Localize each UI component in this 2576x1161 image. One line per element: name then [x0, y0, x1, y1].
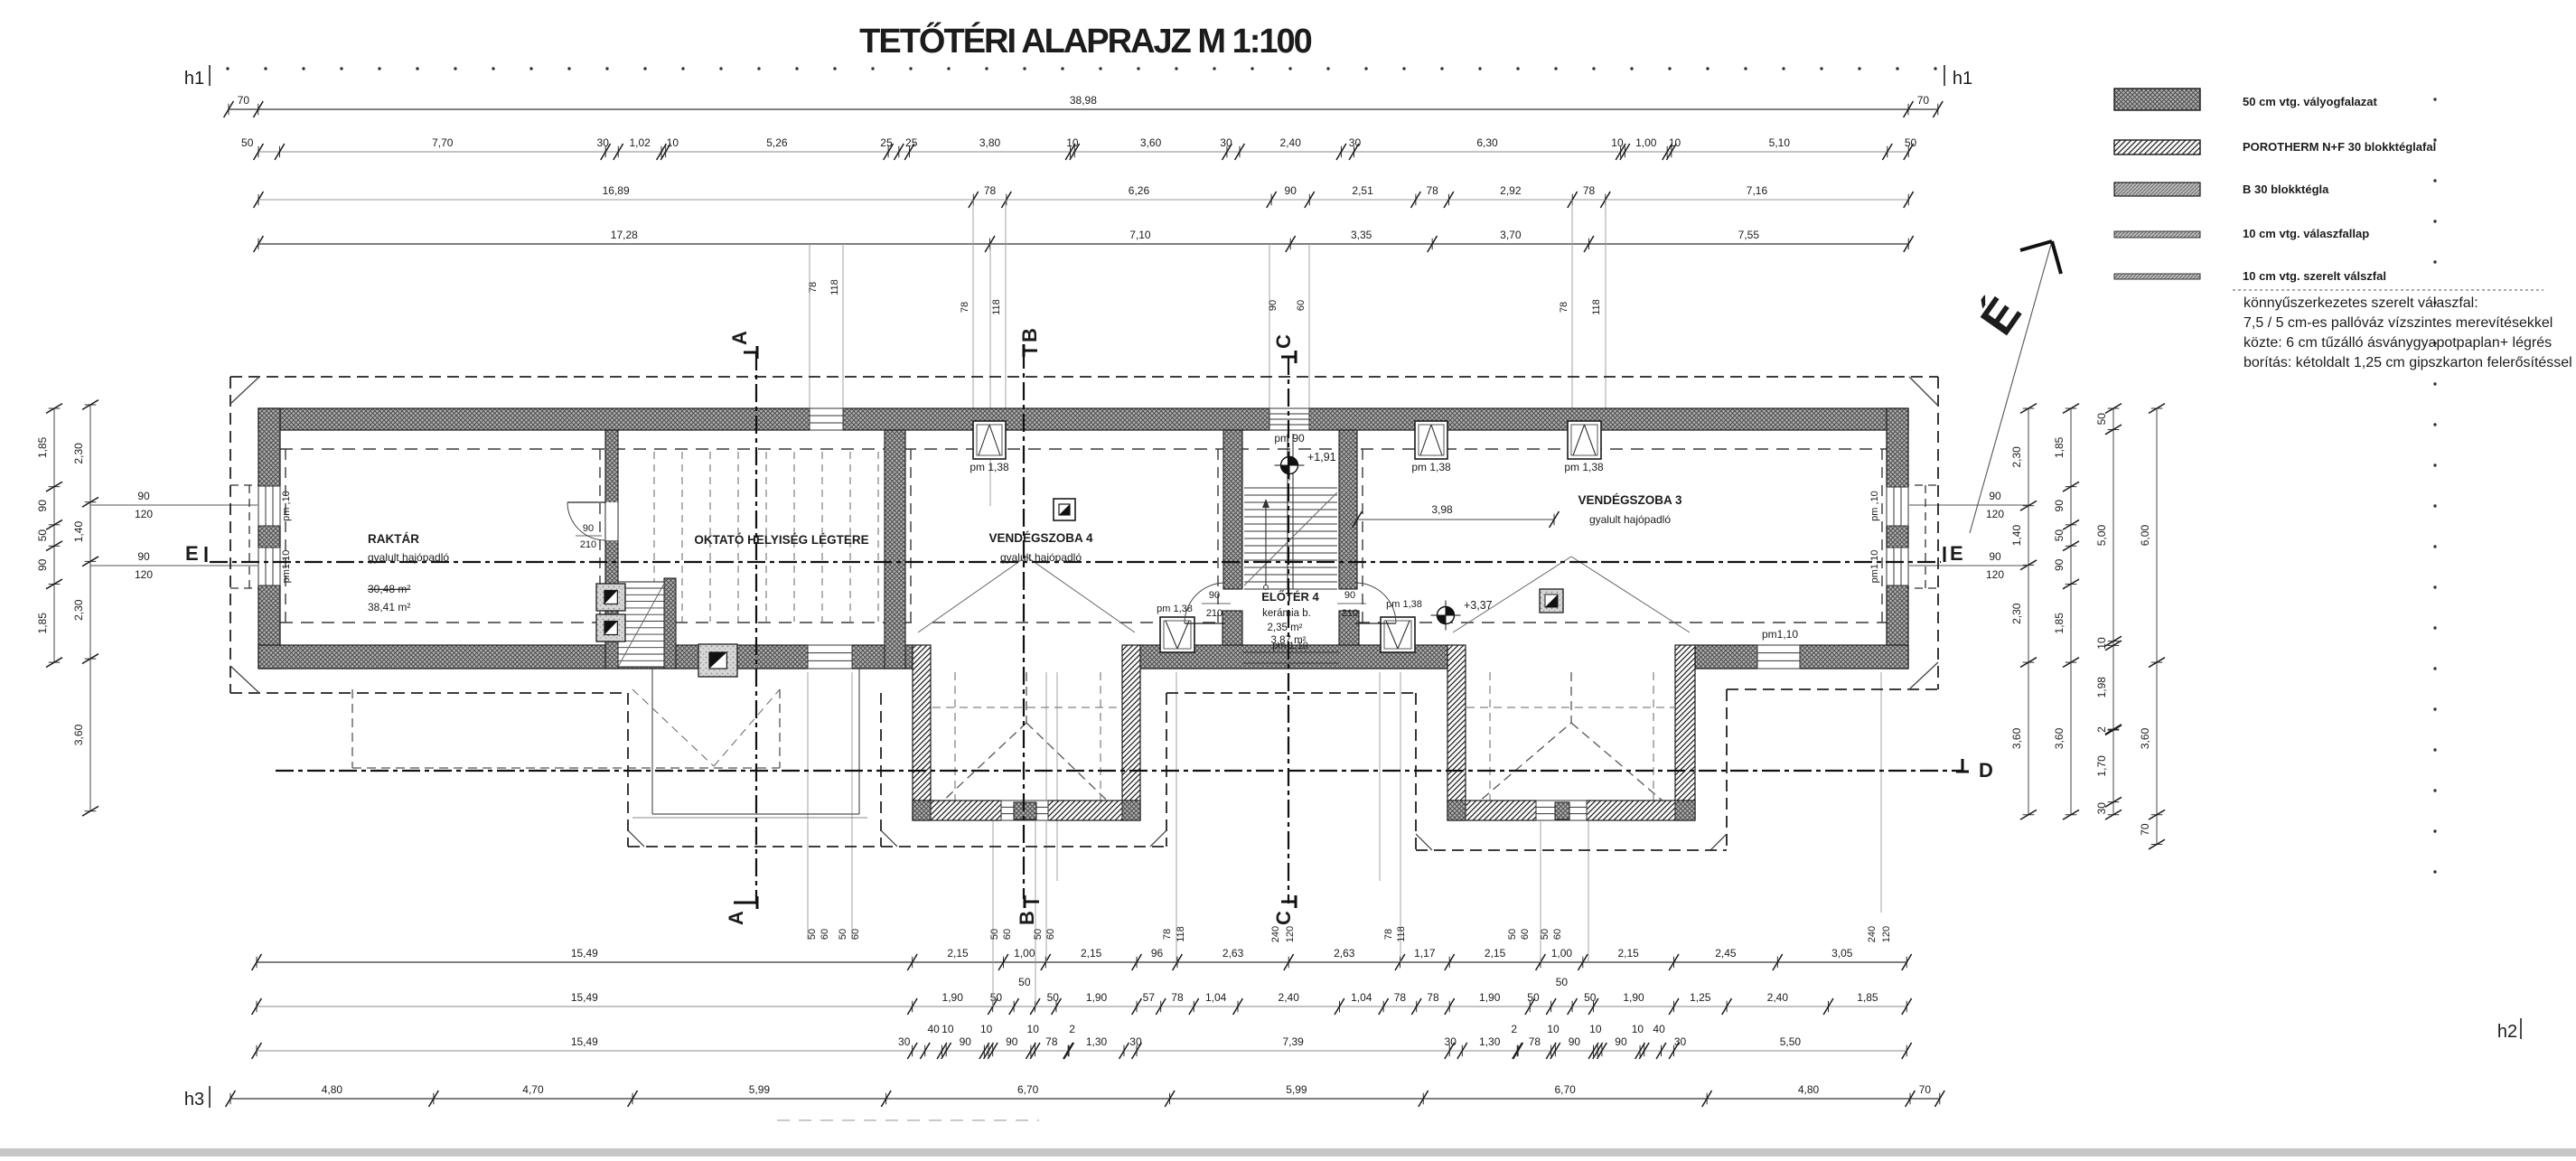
- svg-text:120: 120: [1986, 568, 2004, 581]
- svg-text:4,80: 4,80: [1798, 1083, 1820, 1096]
- svg-text:38,98: 38,98: [1070, 94, 1097, 107]
- svg-text:10: 10: [667, 136, 679, 149]
- svg-text:120: 120: [135, 568, 153, 581]
- svg-text:kerámia b.: kerámia b.: [1262, 608, 1311, 619]
- svg-text:90: 90: [1615, 1035, 1627, 1048]
- svg-text:78: 78: [1559, 302, 1569, 313]
- svg-text:25: 25: [880, 136, 893, 149]
- svg-text:B 30 blokktégla: B 30 blokktégla: [2243, 183, 2329, 196]
- svg-text:1,40: 1,40: [2010, 525, 2023, 547]
- svg-text:2,30: 2,30: [2010, 446, 2023, 468]
- svg-text:2,30: 2,30: [72, 443, 85, 464]
- svg-text:50: 50: [1047, 991, 1060, 1004]
- svg-text:6,30: 6,30: [1476, 136, 1498, 149]
- svg-text:60: 60: [1002, 929, 1013, 940]
- svg-text:78: 78: [1383, 929, 1394, 940]
- svg-text:10: 10: [2095, 637, 2108, 650]
- svg-text:1,30: 1,30: [1479, 1035, 1501, 1048]
- svg-text:6,26: 6,26: [1129, 184, 1150, 197]
- svg-text:60: 60: [1296, 300, 1307, 311]
- svg-text:16,89: 16,89: [603, 184, 630, 197]
- svg-text:6,00: 6,00: [2139, 525, 2151, 547]
- svg-text:1,04: 1,04: [1351, 991, 1372, 1004]
- svg-text:7,10: 7,10: [1129, 229, 1151, 241]
- svg-text:h3: h3: [184, 1090, 204, 1110]
- svg-text:5,10: 5,10: [1769, 136, 1791, 149]
- svg-text:2: 2: [1511, 1023, 1517, 1035]
- svg-text:3,60: 3,60: [1140, 136, 1162, 149]
- svg-text:78: 78: [960, 302, 970, 313]
- svg-text:50: 50: [1584, 991, 1597, 1004]
- svg-text:10: 10: [1611, 136, 1624, 149]
- svg-text:3,87 m²: 3,87 m²: [1271, 635, 1307, 646]
- svg-text:90: 90: [1268, 300, 1279, 311]
- svg-text:A: A: [728, 331, 751, 345]
- svg-text:E: E: [185, 542, 199, 565]
- svg-text:210: 210: [1206, 608, 1222, 619]
- svg-text:h1: h1: [1953, 69, 1972, 89]
- svg-text:50: 50: [1905, 136, 1917, 149]
- svg-text:RAKTÁR: RAKTÁR: [368, 532, 419, 546]
- svg-text:2,15: 2,15: [947, 947, 969, 960]
- svg-text:210: 210: [580, 539, 596, 550]
- svg-text:90: 90: [1569, 1035, 1581, 1048]
- svg-text:6,70: 6,70: [1555, 1083, 1577, 1096]
- svg-text:10: 10: [1669, 136, 1681, 149]
- svg-text:pm 1,38: pm 1,38: [1411, 461, 1451, 473]
- svg-text:10 cm vtg. szerelt válszfal: 10 cm vtg. szerelt válszfal: [2243, 269, 2386, 283]
- svg-text:2,35 m²: 2,35 m²: [1268, 623, 1303, 633]
- svg-text:50: 50: [1540, 929, 1550, 940]
- svg-text:3,35: 3,35: [1351, 229, 1372, 241]
- svg-text:15,49: 15,49: [571, 1035, 598, 1048]
- svg-text:pm 1,38: pm 1,38: [1564, 461, 1604, 473]
- svg-text:B: B: [1016, 911, 1038, 925]
- svg-text:70: 70: [238, 94, 250, 107]
- svg-text:7,70: 7,70: [432, 136, 454, 149]
- svg-text:38,41 m²: 38,41 m²: [368, 601, 410, 613]
- svg-text:210: 210: [1342, 608, 1358, 619]
- svg-text:2,40: 2,40: [1767, 991, 1789, 1004]
- svg-text:3,60: 3,60: [2053, 727, 2065, 749]
- svg-text:pm 90: pm 90: [1274, 432, 1305, 445]
- svg-text:78: 78: [1045, 1035, 1058, 1048]
- svg-text:10: 10: [1066, 136, 1079, 149]
- svg-text:pm ,10: pm ,10: [1869, 491, 1880, 521]
- svg-text:78: 78: [1394, 991, 1407, 1004]
- svg-text:2,30: 2,30: [72, 599, 85, 621]
- svg-text:30,48 m²: 30,48 m²: [368, 583, 410, 595]
- svg-text:118: 118: [1396, 926, 1407, 942]
- svg-text:6,70: 6,70: [1017, 1083, 1039, 1096]
- svg-text:1,98: 1,98: [2095, 677, 2108, 698]
- svg-text:7,5 / 5 cm-es pallóváz vízszin: 7,5 / 5 cm-es pallóváz vízszintes mereví…: [2243, 315, 2553, 331]
- svg-text:1,70: 1,70: [2095, 755, 2108, 777]
- svg-text:VENDÉGSZOBA 3: VENDÉGSZOBA 3: [1578, 493, 1682, 507]
- svg-text:ELŐTÉR 4: ELŐTÉR 4: [1261, 590, 1319, 604]
- svg-text:1,00: 1,00: [1635, 136, 1657, 149]
- svg-text:78: 78: [1583, 184, 1596, 197]
- svg-text:50: 50: [990, 991, 1003, 1004]
- svg-text:1,90: 1,90: [1623, 991, 1644, 1004]
- svg-text:90: 90: [1989, 490, 2001, 502]
- svg-text:50: 50: [241, 136, 254, 149]
- svg-text:30: 30: [1445, 1035, 1457, 1048]
- svg-text:1,85: 1,85: [36, 613, 49, 634]
- svg-text:pm1,10: pm1,10: [1869, 550, 1880, 584]
- svg-text:7,39: 7,39: [1282, 1035, 1304, 1048]
- svg-text:könnyűszerkezetes szerelt vála: könnyűszerkezetes szerelt válaszfal:: [2243, 295, 2478, 311]
- svg-text:90: 90: [1209, 590, 1220, 601]
- svg-text:7,55: 7,55: [1738, 229, 1760, 241]
- svg-text:10: 10: [1547, 1023, 1560, 1035]
- svg-text:+3,37: +3,37: [1464, 599, 1493, 612]
- svg-text:78: 78: [1162, 929, 1173, 940]
- svg-text:240: 240: [1270, 926, 1281, 942]
- svg-text:2,92: 2,92: [1500, 184, 1522, 197]
- svg-text:96: 96: [1151, 947, 1164, 960]
- svg-text:40: 40: [927, 1023, 940, 1035]
- svg-text:2,40: 2,40: [1280, 136, 1302, 149]
- svg-text:2,45: 2,45: [1715, 947, 1737, 960]
- svg-text:50: 50: [1033, 929, 1044, 940]
- svg-text:2,30: 2,30: [2010, 603, 2023, 624]
- svg-text:3,60: 3,60: [72, 724, 85, 745]
- svg-text:1,85: 1,85: [36, 436, 49, 458]
- svg-text:90: 90: [2053, 558, 2065, 571]
- svg-text:közte: 6 cm tűzálló ásványgyap: közte: 6 cm tűzálló ásványgyapotpaplan+ …: [2243, 335, 2552, 351]
- svg-text:5,00: 5,00: [2095, 525, 2108, 547]
- svg-text:120: 120: [1881, 926, 1892, 942]
- svg-text:C: C: [1272, 334, 1295, 349]
- svg-text:gyalult hajópadló: gyalult hajópadló: [368, 551, 449, 564]
- svg-text:78: 78: [1171, 991, 1184, 1004]
- svg-text:5,26: 5,26: [766, 136, 788, 149]
- svg-text:C: C: [1272, 911, 1295, 925]
- svg-text:3,98: 3,98: [1431, 503, 1453, 516]
- svg-text:30: 30: [1349, 136, 1362, 149]
- svg-text:90: 90: [1989, 550, 2001, 563]
- svg-text:60: 60: [1552, 929, 1563, 940]
- svg-text:1,85: 1,85: [2053, 613, 2065, 634]
- svg-text:50 cm vtg. vályogfalazat: 50 cm vtg. vályogfalazat: [2243, 95, 2378, 108]
- svg-text:1,04: 1,04: [1205, 991, 1227, 1004]
- svg-text:2,63: 2,63: [1334, 947, 1355, 960]
- svg-text:30: 30: [1129, 1035, 1142, 1048]
- svg-text:3,60: 3,60: [2139, 727, 2151, 749]
- svg-text:17,28: 17,28: [611, 229, 638, 241]
- svg-text:70: 70: [1917, 94, 1930, 107]
- svg-text:pm ,10: pm ,10: [281, 491, 292, 521]
- svg-text:7,16: 7,16: [1747, 184, 1768, 197]
- svg-text:15,49: 15,49: [571, 991, 598, 1004]
- svg-text:10: 10: [1632, 1023, 1644, 1035]
- svg-text:78: 78: [1426, 184, 1438, 197]
- svg-text:10: 10: [980, 1023, 993, 1035]
- svg-text:3,60: 3,60: [2010, 727, 2023, 749]
- svg-text:30: 30: [898, 1035, 911, 1048]
- svg-text:1,00: 1,00: [1014, 947, 1035, 960]
- svg-text:40: 40: [1653, 1023, 1665, 1035]
- svg-text:90: 90: [137, 490, 150, 502]
- svg-text:30: 30: [1674, 1035, 1687, 1048]
- svg-text:50: 50: [2095, 413, 2108, 426]
- svg-text:3,80: 3,80: [979, 136, 1001, 149]
- svg-text:60: 60: [820, 929, 830, 940]
- svg-text:h2: h2: [2497, 1022, 2517, 1042]
- svg-text:3,70: 3,70: [1500, 229, 1522, 241]
- svg-text:118: 118: [991, 299, 1002, 315]
- svg-text:1,85: 1,85: [1857, 991, 1878, 1004]
- svg-text:78: 78: [1427, 991, 1439, 1004]
- svg-text:120: 120: [1285, 926, 1296, 942]
- svg-text:78: 78: [984, 184, 997, 197]
- svg-text:50: 50: [36, 529, 49, 542]
- svg-text:78: 78: [1529, 1035, 1541, 1048]
- svg-text:90: 90: [1006, 1035, 1018, 1048]
- svg-text:1,90: 1,90: [1086, 991, 1108, 1004]
- svg-text:pm 1,38: pm 1,38: [970, 461, 1009, 473]
- svg-text:OKTATÓ HELYISÉG LÉGTERE: OKTATÓ HELYISÉG LÉGTERE: [694, 533, 868, 547]
- svg-text:10: 10: [1589, 1023, 1602, 1035]
- svg-text:gyalult hajópadló: gyalult hajópadló: [1000, 551, 1082, 564]
- svg-text:10 cm vtg. válaszfallap: 10 cm vtg. válaszfallap: [2243, 227, 2369, 240]
- svg-text:TETŐTÉRI ALAPRAJZ M 1:100: TETŐTÉRI ALAPRAJZ M 1:100: [859, 21, 1312, 61]
- svg-text:90: 90: [137, 550, 150, 563]
- svg-text:A: A: [725, 911, 747, 925]
- svg-text:3,05: 3,05: [1831, 947, 1853, 960]
- svg-text:118: 118: [829, 279, 840, 295]
- svg-text:60: 60: [850, 929, 861, 940]
- svg-text:1,30: 1,30: [1086, 1035, 1108, 1048]
- svg-text:90: 90: [2053, 500, 2065, 512]
- svg-text:15,49: 15,49: [571, 947, 598, 960]
- svg-text:2,51: 2,51: [1352, 184, 1373, 197]
- svg-text:2,15: 2,15: [1485, 947, 1506, 960]
- svg-text:1,90: 1,90: [1479, 991, 1501, 1004]
- svg-text:30: 30: [1220, 136, 1232, 149]
- svg-text:2,15: 2,15: [1617, 947, 1639, 960]
- svg-text:1,85: 1,85: [2053, 436, 2065, 458]
- svg-text:90: 90: [36, 500, 49, 512]
- svg-text:70: 70: [1919, 1083, 1932, 1096]
- svg-text:2: 2: [1069, 1023, 1075, 1035]
- svg-text:B: B: [1018, 328, 1041, 342]
- svg-text:50: 50: [989, 929, 1000, 940]
- svg-text:2,40: 2,40: [1279, 991, 1300, 1004]
- svg-text:5,99: 5,99: [1286, 1083, 1307, 1096]
- svg-text:1,00: 1,00: [1551, 947, 1573, 960]
- svg-text:50: 50: [1507, 929, 1518, 940]
- svg-text:4,80: 4,80: [322, 1083, 343, 1096]
- svg-text:10: 10: [941, 1023, 954, 1035]
- svg-text:1,40: 1,40: [72, 521, 85, 543]
- svg-text:POROTHERM N+F 30 blokktéglafal: POROTHERM N+F 30 blokktéglafal: [2243, 140, 2436, 154]
- svg-text:90: 90: [960, 1035, 972, 1048]
- svg-text:1,90: 1,90: [942, 991, 964, 1004]
- svg-text:120: 120: [135, 508, 153, 520]
- svg-text:gyalult hajópadló: gyalult hajópadló: [1589, 513, 1671, 526]
- svg-text:VENDÉGSZOBA 4: VENDÉGSZOBA 4: [988, 531, 1093, 545]
- svg-text:118: 118: [1591, 299, 1602, 315]
- svg-text:1,17: 1,17: [1414, 947, 1436, 960]
- svg-text:D: D: [1979, 759, 1993, 782]
- svg-text:2,63: 2,63: [1222, 947, 1244, 960]
- svg-text:+1,91: +1,91: [1307, 451, 1336, 463]
- svg-text:118: 118: [1176, 926, 1186, 942]
- svg-text:2: 2: [2095, 726, 2108, 733]
- svg-text:30: 30: [2095, 802, 2108, 815]
- svg-text:50: 50: [838, 929, 848, 940]
- svg-text:78: 78: [808, 282, 819, 293]
- svg-text:90: 90: [1285, 184, 1297, 197]
- svg-text:70: 70: [2139, 823, 2151, 836]
- svg-text:30: 30: [597, 136, 610, 149]
- svg-text:pm1,10: pm1,10: [1762, 628, 1798, 641]
- svg-text:50: 50: [1527, 991, 1540, 1004]
- svg-text:90: 90: [1344, 590, 1355, 601]
- svg-text:10: 10: [1027, 1023, 1040, 1035]
- svg-text:60: 60: [1045, 929, 1056, 940]
- svg-text:1,02: 1,02: [629, 136, 651, 149]
- svg-text:240: 240: [1867, 926, 1878, 942]
- svg-text:25: 25: [905, 136, 918, 149]
- svg-text:borítás: kétoldalt 1,25 cm gip: borítás: kétoldalt 1,25 cm gipszkarton f…: [2243, 355, 2572, 370]
- svg-text:60: 60: [1520, 929, 1531, 940]
- svg-text:120: 120: [1986, 508, 2004, 520]
- svg-text:1,25: 1,25: [1690, 991, 1711, 1004]
- svg-text:50: 50: [1556, 976, 1569, 988]
- svg-text:5,50: 5,50: [1780, 1035, 1802, 1048]
- svg-text:4,70: 4,70: [522, 1083, 544, 1096]
- svg-text:57: 57: [1143, 991, 1156, 1004]
- svg-text:90: 90: [583, 523, 594, 534]
- svg-text:E: E: [1950, 542, 1963, 565]
- svg-text:pm1,10: pm1,10: [281, 550, 292, 584]
- svg-text:50: 50: [807, 929, 818, 940]
- svg-text:5,99: 5,99: [749, 1083, 771, 1096]
- svg-text:2,15: 2,15: [1081, 947, 1102, 960]
- svg-text:90: 90: [36, 558, 49, 571]
- svg-text:h1: h1: [184, 69, 204, 89]
- svg-text:50: 50: [2053, 529, 2065, 542]
- svg-text:50: 50: [1018, 976, 1031, 988]
